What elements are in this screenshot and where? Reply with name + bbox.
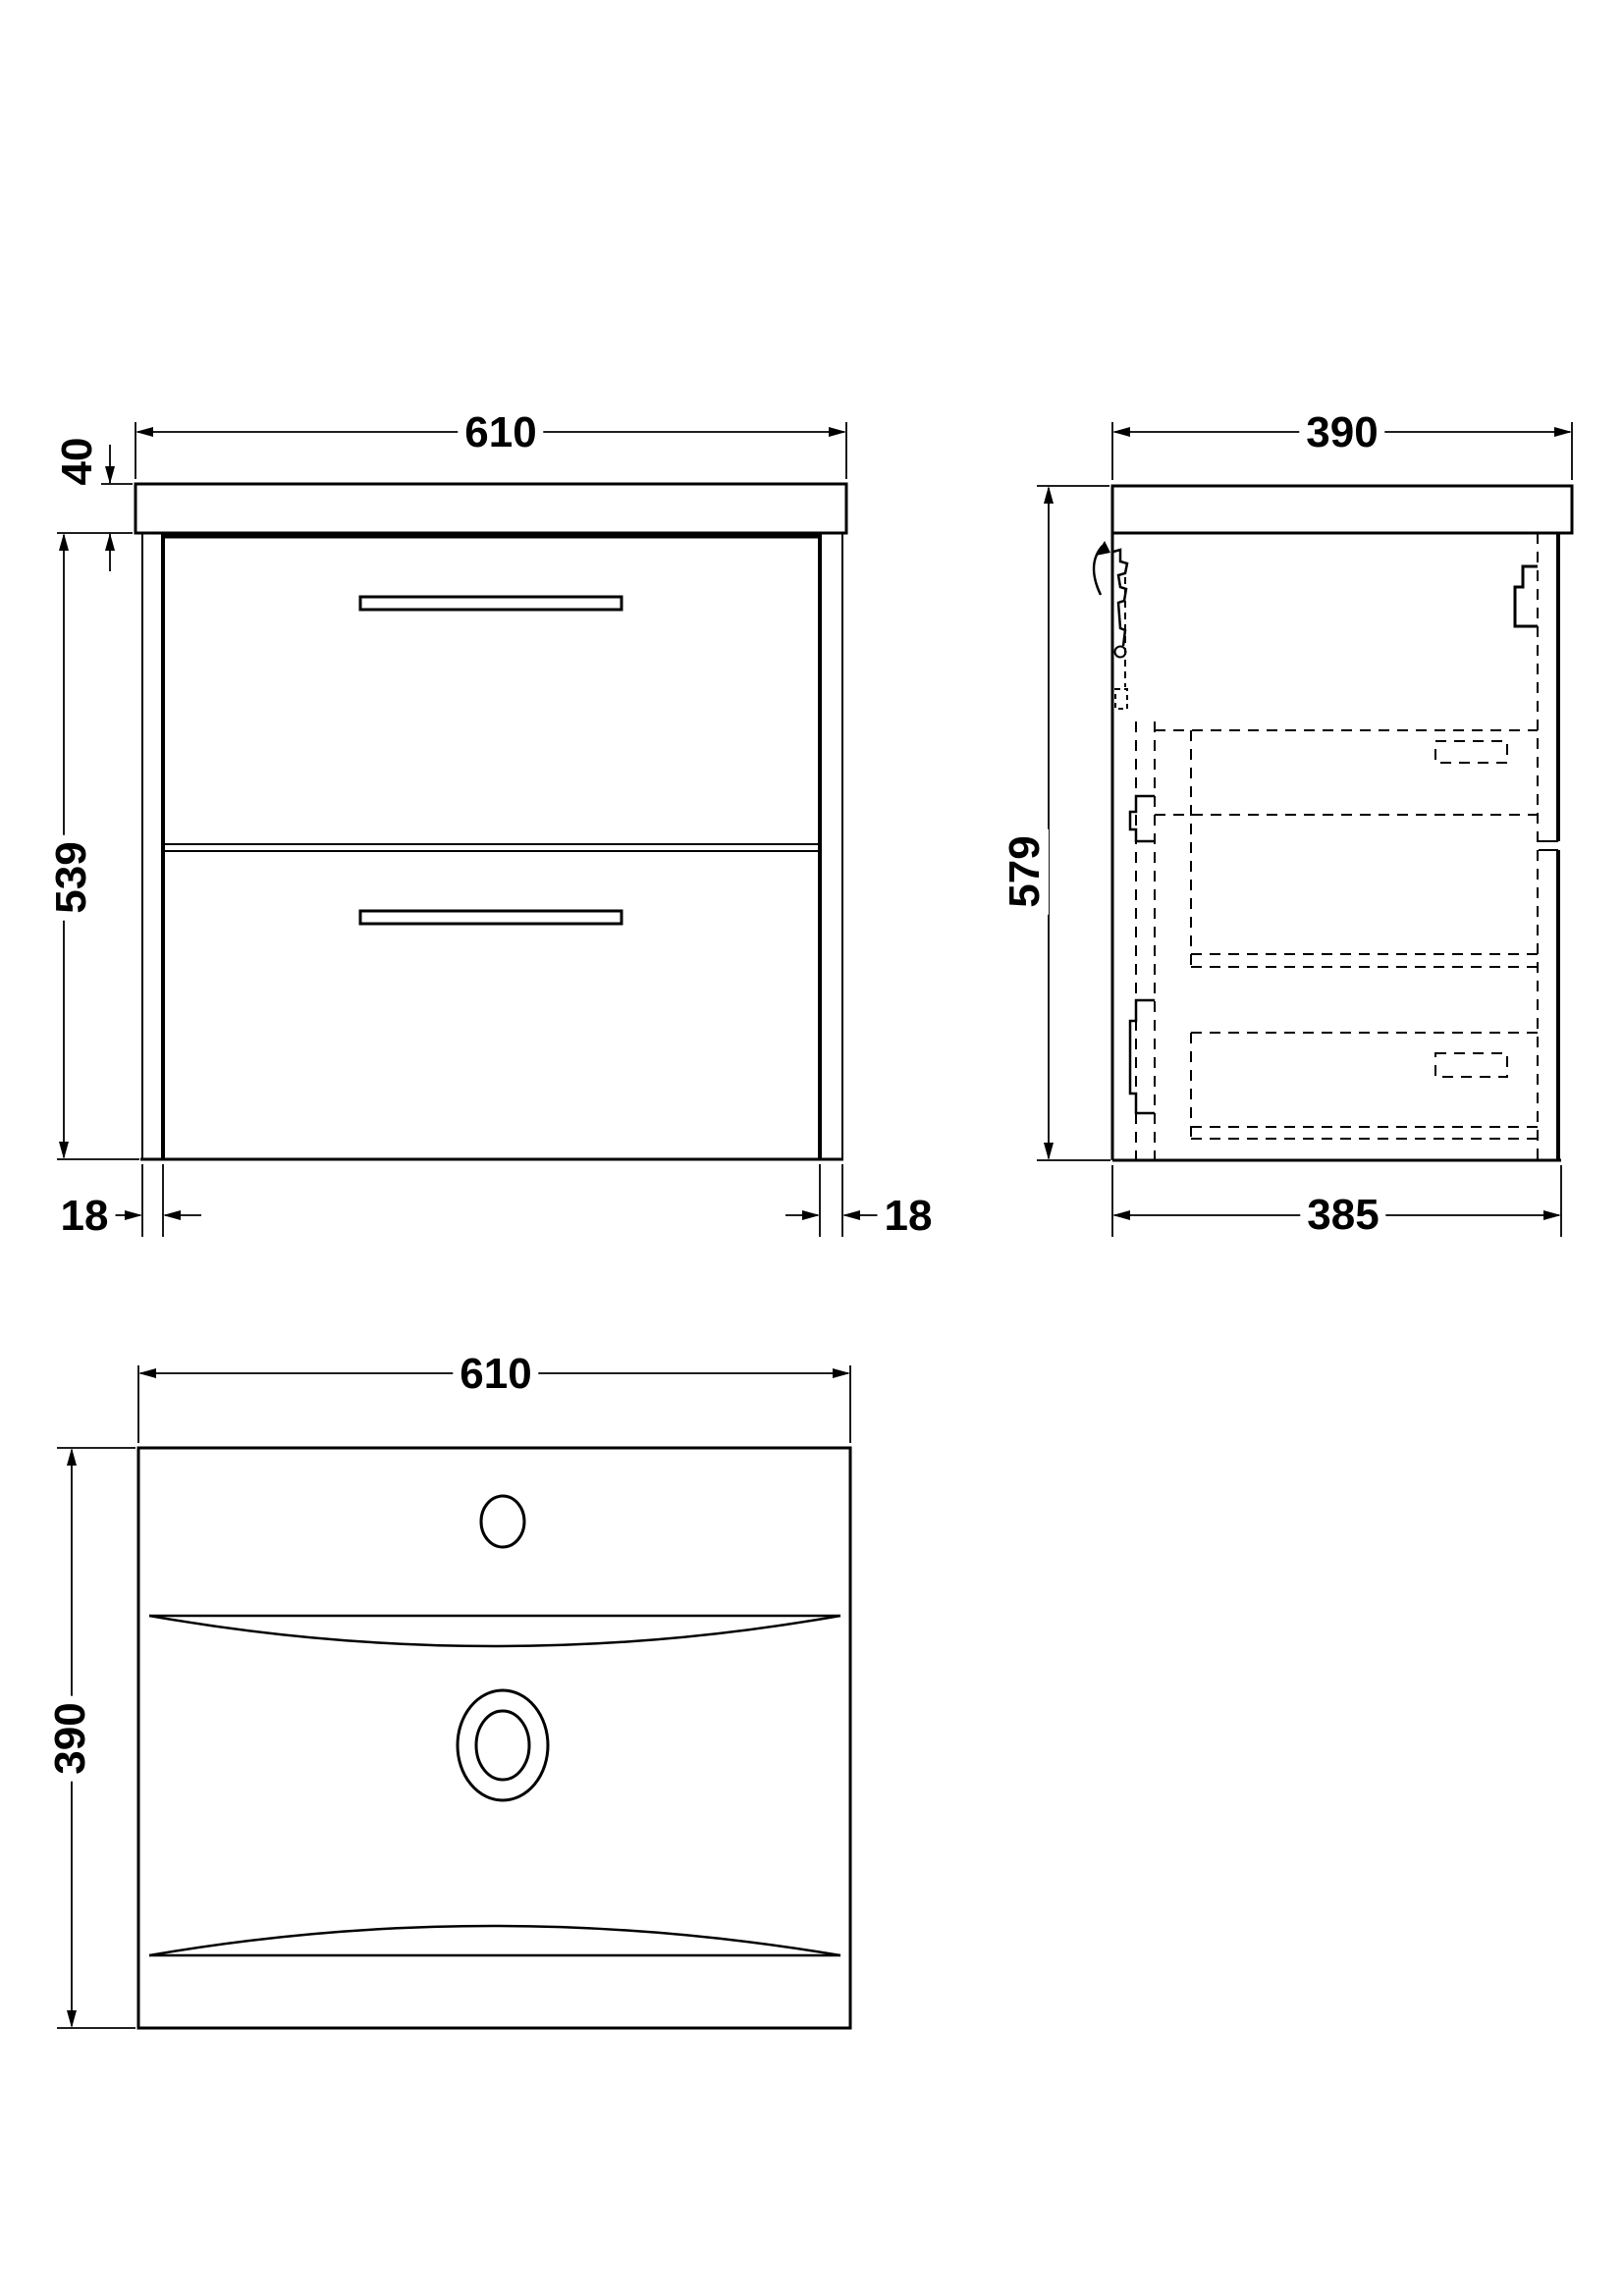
front-dim-left-panel: [111, 1164, 201, 1237]
drawer-handle-top: [360, 597, 622, 610]
front-dim-right-panel: [785, 1164, 880, 1237]
front-worktop-thickness-label: 40: [54, 431, 101, 493]
wall-hanging-bracket: [1094, 541, 1127, 709]
front-left-panel-label: 18: [54, 1193, 116, 1240]
drawer-slide-plate-top: [1435, 741, 1507, 763]
plan-depth-label: 390: [47, 1695, 94, 1781]
plan-view: [57, 1365, 850, 2028]
front-cabinet-height-label: 539: [48, 834, 95, 920]
side-depth-label: 390: [1299, 409, 1384, 456]
side-overall-height-label: 579: [1001, 828, 1049, 914]
plan-width-label: 610: [453, 1351, 538, 1398]
side-worktop: [1112, 486, 1572, 533]
drawer-bracket-notch: [1515, 566, 1538, 626]
drawer-slide-plate-bottom: [1435, 1053, 1507, 1077]
side-view: [1037, 422, 1572, 1237]
technical-drawing-page: 610 40 539 18 18 390 579 385 610 390: [0, 0, 1623, 2296]
front-width-label: 610: [458, 409, 543, 456]
side-dim-overall-height: [1037, 486, 1110, 1160]
drawing-svg: [0, 0, 1623, 2296]
front-right-panel-label: 18: [878, 1193, 940, 1240]
side-cabinet-depth-label: 385: [1300, 1192, 1385, 1239]
side-hidden-drawers: [1136, 721, 1538, 1160]
front-view: [57, 422, 880, 1237]
drawer-handle-bottom: [360, 911, 622, 924]
front-worktop: [135, 484, 846, 533]
